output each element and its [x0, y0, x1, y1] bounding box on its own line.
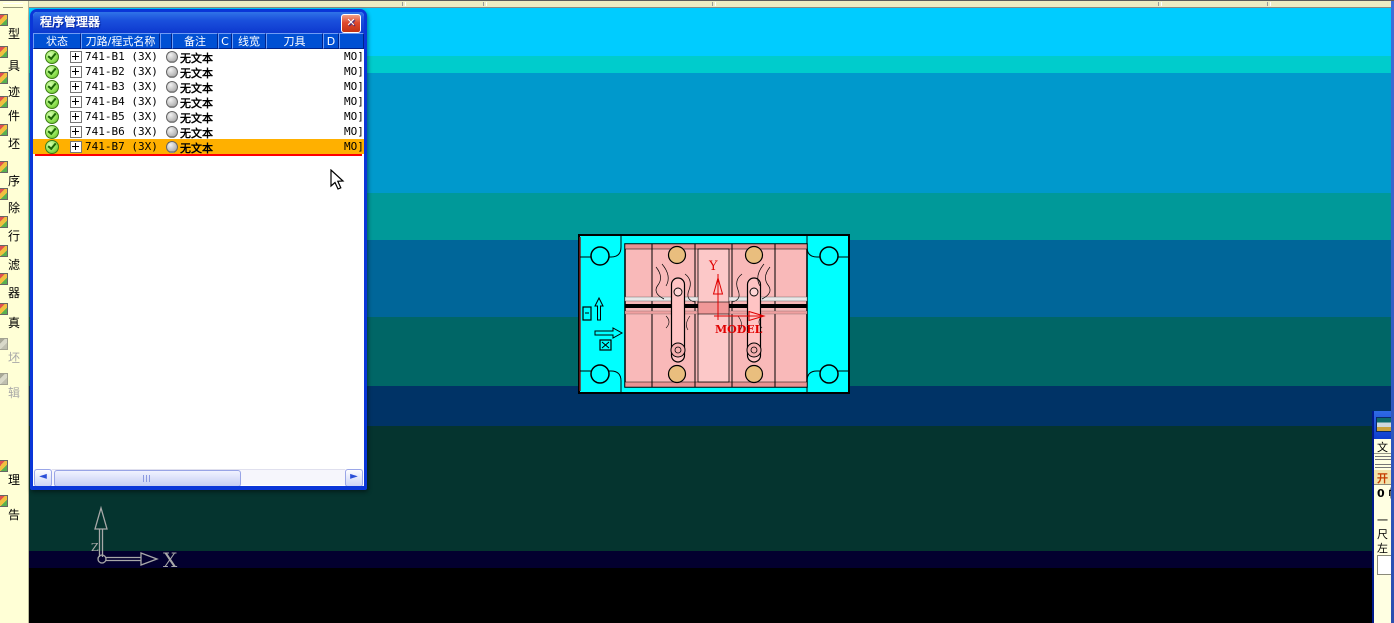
status-check-icon	[45, 95, 59, 109]
toolbar-item-label: 滤	[8, 256, 20, 273]
right-dialog-titlebar[interactable]	[1374, 411, 1391, 439]
model-y-label: Y	[708, 259, 718, 274]
toolbar-separator	[712, 2, 716, 6]
scrollbar-thumb[interactable]	[54, 470, 241, 486]
toolpath-row[interactable]: 741-B3 (3X) ( 无文本 MO]	[33, 79, 364, 94]
toolbar-item-label: 迹	[8, 83, 20, 100]
color-band	[28, 551, 1391, 568]
toolbar-item-icon	[0, 124, 8, 136]
toolpath-row[interactable]: 741-B2 (3X) ( 无文本 MO]	[33, 64, 364, 79]
dialog-row	[1374, 462, 1391, 470]
program-manager-title: 程序管理器	[40, 15, 100, 29]
toolbar-item-label: 行	[8, 227, 20, 244]
expand-plus-icon[interactable]	[70, 96, 82, 108]
mouse-cursor	[330, 169, 346, 191]
toolbar-item-icon	[0, 460, 8, 472]
bulb-icon	[166, 96, 178, 108]
toolpath-clipped-text: MO]	[344, 125, 364, 138]
toolbar-item-icon	[0, 188, 8, 200]
toolbar-item-icon	[0, 373, 8, 385]
toolbar-item[interactable]: 型	[0, 25, 28, 41]
toolpath-name: 741-B5 (3X) (	[85, 110, 171, 123]
status-check-icon	[45, 65, 59, 79]
toolbar-item-icon	[0, 495, 8, 507]
expand-plus-icon[interactable]	[70, 66, 82, 78]
column-header[interactable]	[160, 33, 172, 49]
dialog-row: 尺	[1374, 526, 1391, 540]
status-check-icon	[45, 80, 59, 94]
dialog-row: 0 帧	[1374, 485, 1391, 499]
axis-z-label: Z	[91, 541, 99, 554]
column-header[interactable]: 备注	[172, 33, 218, 49]
expand-plus-icon[interactable]	[70, 81, 82, 93]
status-check-icon	[45, 110, 59, 124]
toolpath-row[interactable]: 741-B1 (3X) ( 无文本 MO]	[33, 49, 364, 64]
column-header[interactable]: C	[218, 33, 232, 49]
toolpath-clipped-text: MO]	[344, 80, 364, 93]
toolbar-item-icon	[0, 216, 8, 228]
toolbar-item[interactable]: 件	[0, 107, 28, 123]
toolbar-item-label: 告	[8, 506, 20, 523]
bulb-icon	[166, 66, 178, 78]
toolbar-grip[interactable]	[3, 3, 23, 8]
toolpath-name: 741-B7 (3X) (	[85, 140, 171, 153]
program-manager-titlebar[interactable]: 程序管理器 ✕	[33, 12, 364, 33]
expand-plus-icon[interactable]	[70, 126, 82, 138]
toolpath-row[interactable]: 741-B6 (3X) ( 无文本 MO]	[33, 124, 364, 139]
toolbar-item[interactable]: 行	[0, 227, 28, 243]
right-dialog-rows: 文开0 帧一尺左	[1374, 439, 1391, 576]
bushing	[746, 247, 763, 264]
toolbar-item-label: 序	[8, 172, 20, 189]
corner-hole	[820, 247, 838, 265]
dialog-row: 左	[1374, 540, 1391, 554]
toolbar-separator	[402, 2, 406, 6]
toolbar-item[interactable]: 告	[0, 506, 28, 522]
app-window: Y MODEL Z X 型 具 迹 件 坯 序	[0, 0, 1394, 623]
dialog-row	[1374, 454, 1391, 462]
column-header[interactable]: 线宽	[232, 33, 266, 49]
column-header[interactable]: 刀路/程式名称	[81, 33, 160, 49]
column-header[interactable]: 状态	[33, 33, 81, 49]
bushing	[669, 366, 686, 383]
dialog-row: 一	[1374, 512, 1391, 526]
toolbar-item-icon	[0, 338, 8, 350]
corner-hole	[591, 365, 609, 383]
close-icon: ✕	[346, 16, 355, 29]
bulb-icon	[166, 111, 178, 123]
expand-plus-icon[interactable]	[70, 141, 82, 153]
scroll-left-button[interactable]: ◄	[34, 469, 52, 486]
toolbar-item[interactable]: 坯	[0, 135, 28, 151]
toolpath-name: 741-B6 (3X) (	[85, 125, 171, 138]
toolbar-item-label: 真	[8, 314, 20, 331]
bulb-icon	[166, 126, 178, 138]
toolbar-item: 坯	[0, 349, 28, 365]
status-check-icon	[45, 50, 59, 64]
dialog-button[interactable]: 开	[1374, 470, 1391, 485]
toolpath-list-header: 状态刀路/程式名称备注C线宽刀具D	[33, 33, 364, 49]
toolbar-item-icon	[0, 96, 8, 108]
axis-x-label: X	[163, 548, 178, 572]
toolpath-row[interactable]: 741-B5 (3X) ( 无文本 MO]	[33, 109, 364, 124]
bushing	[746, 366, 763, 383]
toolbar-item-label: 件	[8, 107, 20, 124]
top-toolbar-strip	[28, 1, 1391, 8]
status-check-icon	[45, 125, 59, 139]
scroll-left-icon: ◄	[39, 471, 47, 482]
toolbar-item-label: 器	[8, 284, 20, 301]
scroll-right-button[interactable]: ►	[345, 469, 363, 486]
toolbar-item-label: 型	[8, 25, 20, 42]
toolpath-clipped-text: MO]	[344, 50, 364, 63]
toolbar-item[interactable]: 具	[0, 57, 28, 73]
bulb-icon	[166, 141, 178, 153]
toolpath-clipped-text: MO]	[344, 65, 364, 78]
toolbar-separator	[1267, 2, 1271, 6]
toolbar-item-label: 具	[8, 57, 20, 74]
scrollbar-track[interactable]	[52, 469, 345, 485]
toolbar-item[interactable]: 序	[0, 172, 28, 188]
toolbar-item: 辑	[0, 384, 28, 400]
status-check-icon	[45, 140, 59, 154]
toolpath-clipped-text: MO]	[344, 95, 364, 108]
toolbar-separator	[483, 2, 487, 6]
toolpath-name: 741-B2 (3X) (	[85, 65, 171, 78]
toolbar-item-icon	[0, 72, 8, 84]
corner-hole	[820, 365, 838, 383]
toolpath-row[interactable]: 741-B4 (3X) ( 无文本 MO]	[33, 94, 364, 109]
toolbar-item-icon	[0, 46, 8, 58]
color-band	[28, 568, 1391, 623]
toolbar-item[interactable]: 器	[0, 284, 28, 300]
close-button[interactable]: ✕	[341, 14, 361, 33]
bushing	[669, 247, 686, 264]
toolbar-item[interactable]: 滤	[0, 256, 28, 272]
toolpath-clipped-text: MO]	[344, 110, 364, 123]
column-header[interactable]: 刀具	[266, 33, 323, 49]
toolpath-clipped-text: MO]	[344, 140, 364, 153]
toolpath-name: 741-B3 (3X) (	[85, 80, 171, 93]
toolbar-item[interactable]: 真	[0, 314, 28, 330]
toolbar-item-label: 理	[8, 471, 20, 488]
toolpath-row[interactable]: 741-B7 (3X) ( 无文本 MO]	[33, 139, 364, 154]
toolbar-item-icon	[0, 161, 8, 173]
dialog-row	[1374, 499, 1391, 512]
scroll-right-icon: ►	[350, 471, 358, 482]
toolbar-item-label: 除	[8, 199, 20, 216]
horizontal-scrollbar[interactable]: ◄ ►	[34, 469, 363, 485]
toolbar-item-icon	[0, 303, 8, 315]
expand-plus-icon[interactable]	[70, 111, 82, 123]
toolbar-item[interactable]: 除	[0, 199, 28, 215]
left-toolbar: 型 具 迹 件 坯 序 除 行 滤 器 真 坯 辑 理 告	[0, 1, 29, 623]
toolpath-name: 741-B1 (3X) (	[85, 50, 171, 63]
toolbar-item-icon	[0, 245, 8, 257]
toolbar-item-label: 辑	[8, 384, 20, 401]
toolpath-name: 741-B4 (3X) (	[85, 95, 171, 108]
corner-hole	[591, 247, 609, 265]
toolbar-item-label: 坯	[8, 135, 20, 152]
insert-position-line	[35, 154, 362, 156]
dialog-row: 文	[1374, 439, 1391, 454]
program-manager-window: 程序管理器 ✕ 状态刀路/程式名称备注C线宽刀具D 741-B1 (3X) ( …	[30, 9, 367, 490]
dialog-row[interactable]	[1374, 554, 1391, 576]
bulb-icon	[166, 51, 178, 63]
toolbar-item-icon	[0, 273, 8, 285]
toolbar-item-icon	[0, 14, 8, 26]
right-dialog-app-icon	[1376, 417, 1391, 432]
mold-model: Y MODEL	[578, 234, 850, 394]
world-axis-triad: Z X	[85, 499, 195, 574]
toolbar-separator	[1158, 2, 1162, 6]
column-header[interactable]: D	[323, 33, 339, 49]
column-header[interactable]	[339, 33, 364, 49]
bulb-icon	[166, 81, 178, 93]
expand-plus-icon[interactable]	[70, 51, 82, 63]
clipped-right-dialog: 文开0 帧一尺左	[1372, 411, 1391, 623]
model-origin-label: MODEL	[715, 323, 763, 336]
toolbar-item[interactable]: 理	[0, 471, 28, 487]
toolpath-list: 741-B1 (3X) ( 无文本 MO] 741-B2 (3X) ( 无文本 …	[33, 49, 364, 154]
program-manager-body: 状态刀路/程式名称备注C线宽刀具D 741-B1 (3X) ( 无文本 MO] …	[33, 33, 364, 486]
toolbar-item-label: 坯	[8, 349, 20, 366]
